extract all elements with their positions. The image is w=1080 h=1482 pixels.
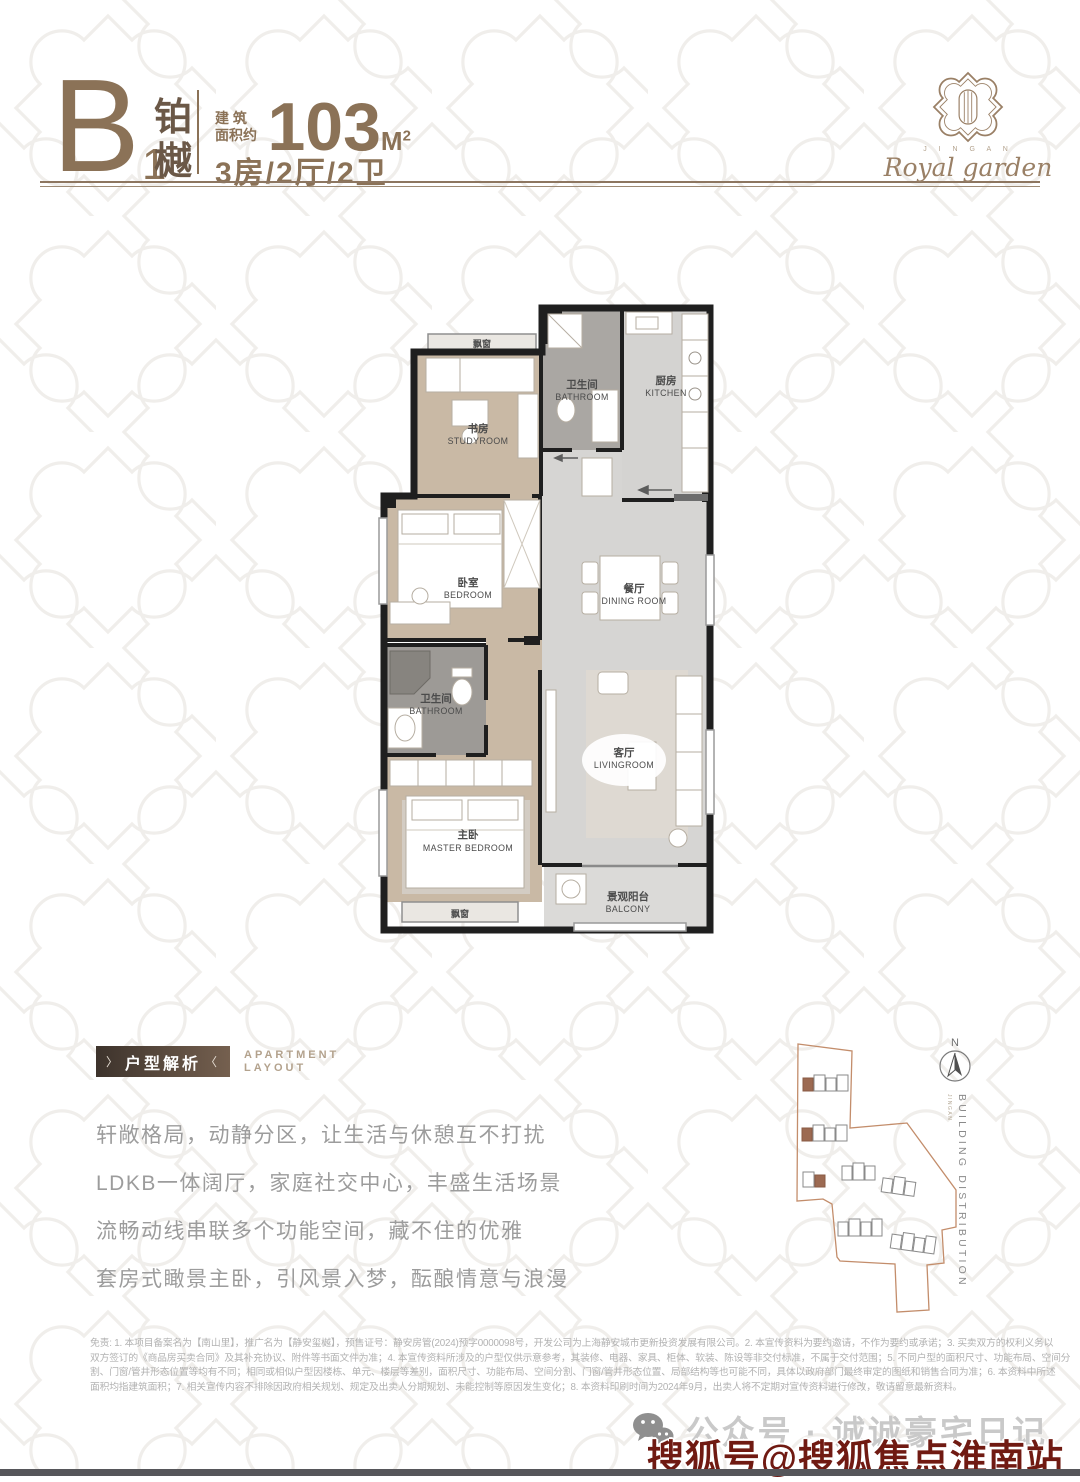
unit-name-char-1: 铂 (152, 96, 194, 140)
kitchen-label-zh: 厨房 (656, 374, 677, 387)
compass-n-label: N (951, 1037, 959, 1049)
entry-sill (674, 494, 708, 501)
badge-deco-left: 〉 (106, 1053, 121, 1070)
section-subtitle-line1: APARTMENT (244, 1049, 339, 1062)
bay-bottom-label: 飘窗 (451, 908, 469, 919)
area-unit-sup: 2 (403, 127, 411, 144)
study-label-en: STUDYROOM (448, 436, 509, 446)
kitchen-label-en: KITCHEN (645, 388, 686, 398)
unit-code: B1 (52, 70, 167, 221)
area-label-bottom: 面积约 (215, 127, 257, 144)
bottom-bar (0, 1469, 1080, 1476)
master-label-en: MASTER BEDROOM (423, 843, 513, 853)
disclaimer-line: 免责: 1. 本项目备案名为【南山里】，推广名为【静安玺樾】，预售证号：静安房管… (90, 1337, 1010, 1352)
dining-label-zh: 餐厅 (623, 582, 645, 595)
building-cluster (881, 1175, 916, 1196)
bay-top-label: 飘窗 (473, 338, 491, 349)
brand-name-script: Royal garden (880, 153, 1056, 182)
quatrefoil-logo-icon (931, 70, 1005, 144)
section-badge: 〉 户型解析 〈 (96, 1046, 230, 1077)
floor-plan: 飘窗 书房 STUDYROOM 卫生间 BATHROOM 厨房 KITCHEN … (376, 300, 720, 948)
study-label-zh: 书房 (468, 422, 489, 435)
master-label-zh: 主卧 (458, 828, 479, 841)
area-label-top: 建 筑 (215, 110, 257, 127)
description-line: 轩敞格局，动静分区，让生活与休憩互不打扰 (96, 1112, 569, 1160)
description-line: 套房式瞰景主卧，引风景入梦，酝酿情意与浪漫 (96, 1256, 569, 1304)
balcony-label-en: BALCONY (606, 904, 651, 914)
siteplan-label-small: JINGAN (946, 1094, 952, 1121)
description-line: 流畅动线串联多个功能空间，藏不住的优雅 (96, 1208, 569, 1256)
floorplan-poster-page: { "header": { "unit_code": "B", "unit_su… (0, 0, 1080, 1476)
brand-logo: J I N G A N Royal garden (880, 70, 1056, 182)
dining-label-en: DINING ROOM (602, 596, 667, 606)
unit-name-char-2: 樾 (152, 140, 194, 184)
suite-hall-floor (486, 640, 542, 755)
header-divider (197, 90, 199, 174)
building-cluster (803, 1172, 825, 1187)
disclaimer-line: 双方签订的《商品房买卖合同》及其补充协议、附件等书面文件为准；4. 本宣传资料所… (90, 1352, 1010, 1367)
building-cluster (838, 1219, 882, 1236)
disclaimer-line: 面积均指建筑面积；7. 相关宣传内容不排除因政府相关规划、规定及出卖人分期规划、… (90, 1381, 1010, 1396)
building-cluster (803, 1075, 848, 1091)
brand-name-small: J I N G A N (880, 146, 1056, 153)
section-subtitle-line2: LAYOUT (244, 1062, 339, 1075)
bedroom-label-en: BEDROOM (444, 590, 492, 600)
living-label-en: LIVINGROOM (594, 760, 654, 770)
building-cluster (802, 1125, 847, 1141)
area-label: 建 筑 面积约 (215, 110, 257, 144)
bedroom-label-zh: 卧室 (458, 576, 479, 589)
disclaimer: 免责: 1. 本项目备案名为【南山里】，推广名为【静安玺樾】，预售证号：静安房管… (90, 1337, 1010, 1395)
description-paragraphs: 轩敞格局，动静分区，让生活与休憩互不打扰 LDKB一体阔厅，家庭社交中心，丰盛生… (96, 1112, 569, 1304)
compass-icon: N (940, 1037, 970, 1081)
balcony-label-zh: 景观阳台 (606, 890, 649, 903)
building-distribution-map: N BUILDING DISTRIBUTION JINGAN (778, 1032, 1010, 1332)
section-title: 户型解析 (125, 1050, 201, 1074)
building-cluster (842, 1163, 875, 1180)
section-subtitle: APARTMENT LAYOUT (244, 1049, 339, 1075)
disclaimer-line: 割、门窗/管井形态位置等均有不同；相同或相似户型因楼栋、单元、楼层等差别，面积尺… (90, 1366, 1010, 1381)
living-label-zh: 客厅 (613, 746, 635, 759)
bath2-label-zh: 卫生间 (420, 692, 452, 705)
building-cluster (890, 1231, 936, 1254)
bath1-label-en: BATHROOM (555, 392, 608, 402)
bath2-label-en: BATHROOM (409, 706, 462, 716)
description-line: LDKB一体阔厅，家庭社交中心，丰盛生活场景 (96, 1160, 569, 1208)
buildings (802, 1075, 936, 1254)
siteplan-label: BUILDING DISTRIBUTION (956, 1094, 968, 1288)
bath1-label-zh: 卫生间 (566, 378, 598, 391)
unit-name: 铂 樾 (152, 96, 194, 184)
unit-code-letter: B (52, 52, 140, 199)
badge-deco-right: 〈 (205, 1053, 220, 1070)
